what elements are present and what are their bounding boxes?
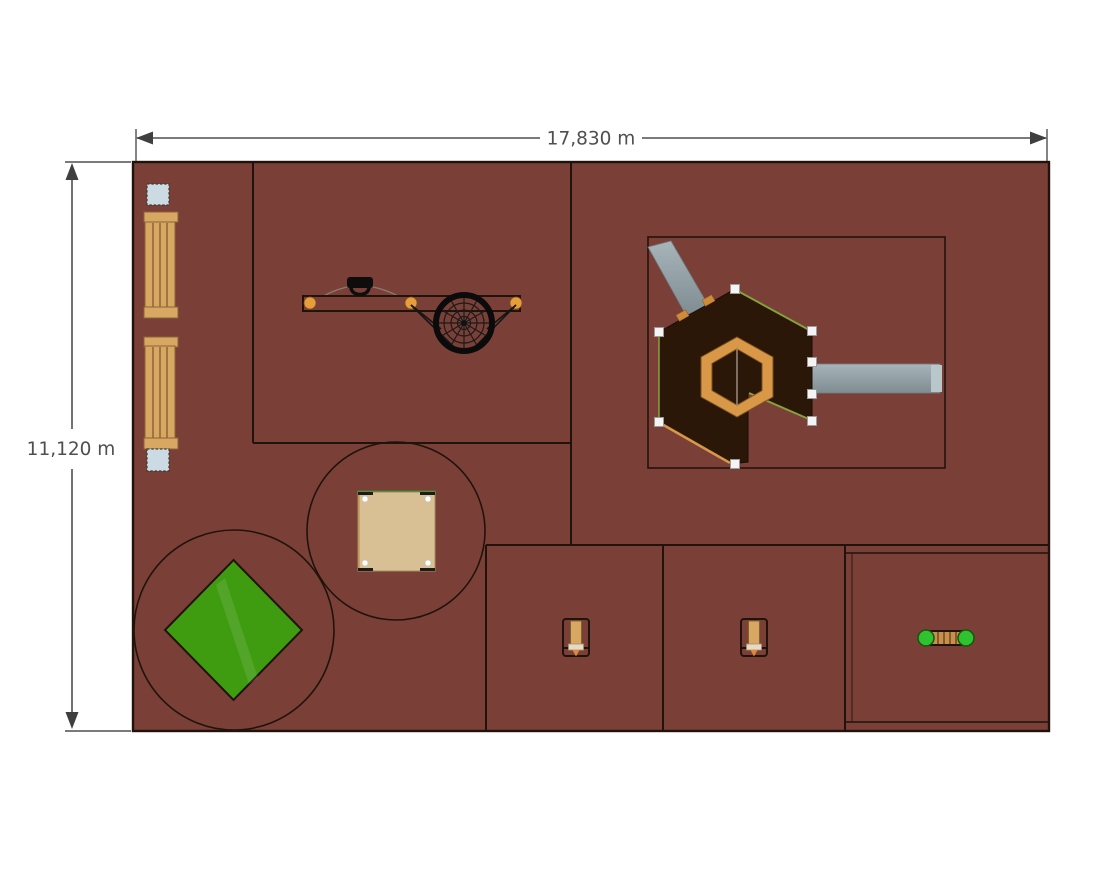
height-dimension-label: 11,120 m	[27, 439, 116, 460]
rider-seat	[747, 644, 762, 650]
selection-handle[interactable]	[808, 390, 817, 399]
bench-icon[interactable]	[144, 337, 178, 449]
rider-body	[749, 621, 760, 647]
plan-viewport: 17,830 m 11,120 m	[0, 0, 1110, 879]
site-plan-canvas: 17,830 m 11,120 m	[0, 0, 1110, 879]
selection-handle[interactable]	[731, 460, 740, 469]
wobble-bar-end	[918, 630, 934, 646]
playground-plan	[133, 162, 1049, 731]
beam-post	[304, 297, 316, 309]
arrow-left-icon	[136, 132, 153, 145]
selection-handle[interactable]	[731, 285, 740, 294]
bench-icon[interactable]	[144, 212, 178, 318]
beam-post	[405, 297, 417, 309]
arrow-right-icon	[1030, 132, 1047, 145]
slide-right-end	[931, 365, 942, 392]
wobble-bar-icon[interactable]	[918, 630, 974, 646]
selection-handle[interactable]	[808, 358, 817, 367]
bench-front-edge	[144, 438, 178, 449]
arrow-down-icon	[66, 712, 79, 729]
selection-handle[interactable]	[655, 418, 664, 427]
bench-front-edge	[144, 307, 178, 318]
selection-handle[interactable]	[655, 328, 664, 337]
cube-seat-icon[interactable]	[147, 184, 169, 205]
sandbox-sand	[358, 492, 435, 571]
wobble-bar-end	[958, 630, 974, 646]
wheel-hub	[461, 320, 467, 326]
rider-seat	[569, 644, 584, 650]
width-dimension-label: 17,830 m	[547, 129, 636, 150]
beam-post	[510, 297, 522, 309]
selection-handle[interactable]	[808, 327, 817, 336]
height-dimension: 11,120 m	[27, 162, 131, 731]
rider-body	[571, 621, 582, 647]
swing-seat	[347, 277, 373, 288]
arrow-up-icon	[66, 163, 79, 180]
bench-backrest	[144, 212, 178, 222]
sandbox-icon[interactable]	[357, 491, 436, 571]
width-dimension: 17,830 m	[136, 129, 1047, 162]
slide-right	[810, 364, 940, 393]
selection-handle[interactable]	[808, 417, 817, 426]
cube-seat-icon[interactable]	[147, 449, 169, 471]
spider-wheel-icon[interactable]	[436, 295, 492, 351]
